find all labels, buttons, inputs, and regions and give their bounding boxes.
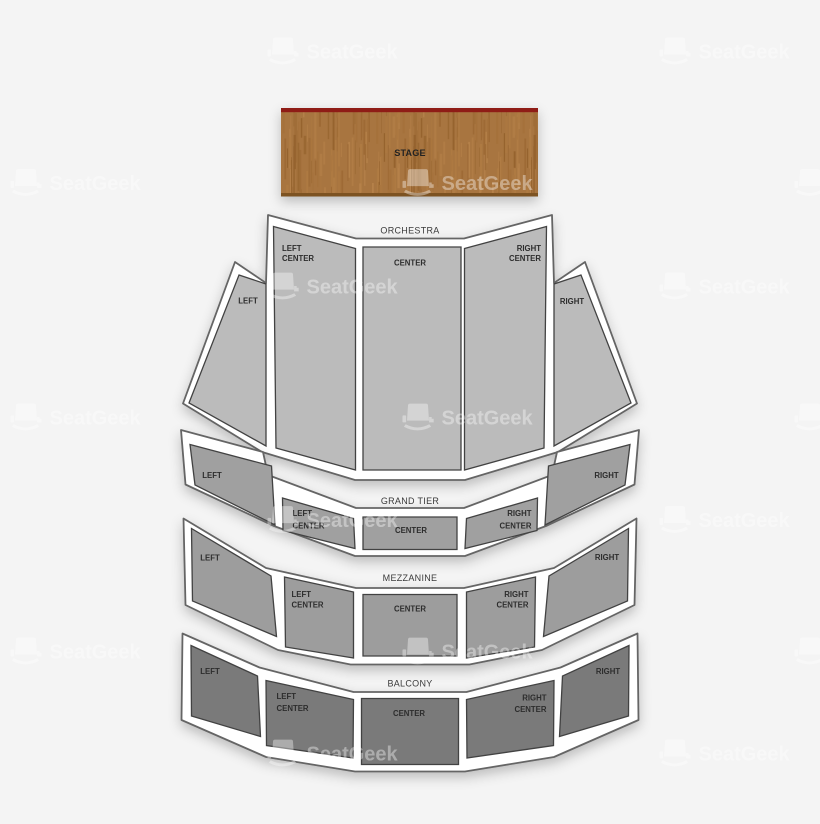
svg-text:GRAND TIER: GRAND TIER [381, 496, 440, 506]
svg-text:LEFT: LEFT [238, 297, 258, 306]
svg-text:CENTER: CENTER [393, 709, 425, 718]
svg-text:CENTER: CENTER [394, 258, 426, 267]
svg-text:LEFT: LEFT [200, 667, 220, 676]
svg-text:RIGHT: RIGHT [594, 471, 618, 480]
svg-text:CENTER: CENTER [394, 604, 426, 613]
svg-text:RIGHT: RIGHT [560, 297, 584, 306]
svg-text:CENTER: CENTER [395, 526, 427, 535]
svg-text:BALCONY: BALCONY [387, 679, 432, 689]
svg-text:RIGHT: RIGHT [595, 553, 619, 562]
svg-text:LEFT: LEFT [202, 471, 222, 480]
svg-text:LEFT: LEFT [200, 553, 220, 562]
svg-text:STAGE: STAGE [394, 148, 425, 158]
svg-text:ORCHESTRA: ORCHESTRA [380, 226, 439, 236]
svg-text:MEZZANINE: MEZZANINE [383, 573, 438, 583]
svg-text:RIGHT: RIGHT [596, 667, 620, 676]
